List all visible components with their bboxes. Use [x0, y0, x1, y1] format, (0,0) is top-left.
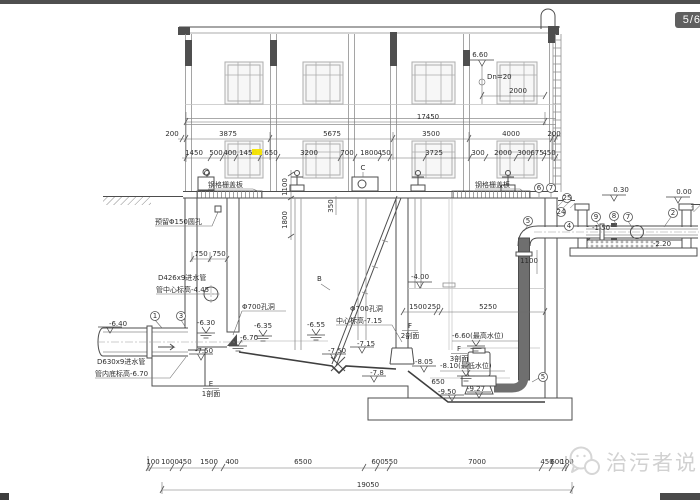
- ref-7b: 7: [547, 184, 556, 193]
- steel-grating-2: [452, 191, 530, 198]
- pump-station-section-drawing: 17450 200 3875 5675 3500 4000 200 1450 5…: [0, 0, 700, 500]
- elev-m78: -7.8: [370, 369, 384, 377]
- svg-text:7: 7: [549, 184, 553, 192]
- label-screen-b: B: [317, 275, 322, 283]
- svg-text:F: F: [408, 322, 412, 330]
- ref-2: 2: [669, 209, 678, 218]
- svg-text:7: 7: [626, 213, 630, 221]
- cad-document-viewer: 5/6: [0, 0, 700, 500]
- dim-b4: 400: [225, 458, 238, 466]
- chat-bubble-icon: [566, 444, 602, 480]
- svg-text:4: 4: [567, 222, 572, 230]
- svg-text:2: 2: [671, 209, 675, 217]
- ref-8: 8: [610, 212, 619, 221]
- dim-r3-14: 450: [542, 149, 555, 157]
- earth-hatch-left: [103, 197, 151, 205]
- dim-b5: 6500: [294, 458, 312, 466]
- dim-r3-6: 700: [340, 149, 353, 157]
- ref-3: 3: [177, 312, 186, 321]
- label-d630-line1: D630x9进水管: [97, 357, 145, 366]
- dim-5250: 5250: [479, 303, 497, 311]
- dim-b1: 1000: [161, 458, 179, 466]
- svg-text:5: 5: [526, 217, 530, 225]
- pipe-dn-label: Dn=20: [487, 73, 512, 81]
- ref-5b: 5: [539, 373, 548, 382]
- label-reserved-hole: 预留Φ150圆孔: [155, 217, 202, 226]
- label-d630-line2: 管内底标高-6.70: [95, 369, 148, 378]
- dimensions-bottom: 100 1000 450 1500 400 6500 600 550 7000 …: [146, 456, 574, 494]
- dim-r3-0: 1450: [185, 149, 203, 157]
- dim-r2-3: 3500: [422, 130, 440, 138]
- ref-7: 7: [624, 213, 633, 222]
- dim-b0: 100: [146, 458, 159, 466]
- dim-350-v: 350: [327, 199, 335, 212]
- dim-b8: 7000: [468, 458, 486, 466]
- dim-r3-10: 300: [471, 149, 484, 157]
- exterior-ladder: [553, 34, 561, 192]
- gravel-fill: [588, 240, 658, 248]
- dim-r2-1: 3875: [219, 130, 237, 138]
- elev-m220: -2.20: [653, 240, 671, 248]
- svg-text:24: 24: [557, 208, 566, 216]
- svg-text:9: 9: [594, 213, 598, 221]
- label-hole700-right: Φ700孔洞: [350, 304, 383, 313]
- label-d426-line1: D426x9进水管: [158, 273, 206, 282]
- reserved-hole: [215, 206, 221, 212]
- dim-r3-12: 300: [517, 149, 530, 157]
- svg-text:E: E: [209, 380, 213, 388]
- elev-m640: -6.40: [109, 320, 127, 328]
- elev-m715: -7.15: [357, 340, 375, 348]
- svg-text:3剖面: 3剖面: [450, 354, 468, 363]
- elev-m655: -6.55: [307, 321, 325, 329]
- svg-text:8: 8: [612, 212, 616, 220]
- scrollbar-thumb[interactable]: [660, 493, 700, 500]
- dim-r3-5: 3200: [300, 149, 318, 157]
- dim-r3-7: 1800: [360, 149, 378, 157]
- inlet-channel-wall: [227, 198, 239, 332]
- dim-1800-v: 1800: [281, 211, 289, 229]
- dim-1500: 1500: [409, 303, 427, 311]
- ref-1: 1: [151, 312, 160, 321]
- elev-m750-mid: -7.50: [328, 347, 346, 355]
- dim-b6: 600: [371, 458, 384, 466]
- dim-total-bottom: 19050: [357, 481, 379, 489]
- scrollbar-corner: [0, 493, 9, 500]
- elev-000: 0.00: [676, 188, 692, 196]
- ref-4: 4: [565, 222, 574, 231]
- divider-wall: [396, 198, 408, 348]
- label-grating-2: 钢格栅盖板: [475, 180, 510, 189]
- dim-r3-4: 650: [264, 149, 277, 157]
- dim-b2: 450: [178, 458, 191, 466]
- dim-750a: 750: [194, 250, 207, 258]
- svg-text:5: 5: [541, 373, 545, 381]
- elev-m927: -9.27: [467, 385, 485, 393]
- roof-eave-left: [178, 27, 190, 35]
- elev-m805: -8.05: [415, 358, 433, 366]
- elev-m750-left: -7.50: [195, 347, 213, 355]
- label-center-elev: 中心标高-7.15: [336, 316, 382, 325]
- dim-r2-4: 4000: [502, 130, 520, 138]
- steel-grating-1: [197, 191, 262, 198]
- dim-250: 250: [427, 303, 440, 311]
- watermark-text: 治污者说: [606, 447, 698, 477]
- dim-r2-2: 5675: [323, 130, 341, 138]
- svg-text:3: 3: [179, 312, 183, 320]
- dim-total-width: 17450: [417, 113, 439, 121]
- elev-m400: -4.00: [411, 273, 429, 281]
- dim-1100-v: 1100: [281, 178, 289, 196]
- elev-m635: -6.35: [254, 322, 272, 330]
- dim-r3-11: 2000: [494, 149, 512, 157]
- dim-r2-5: 200: [547, 130, 560, 138]
- svg-text:25: 25: [563, 194, 572, 202]
- screen-drive-unit: [352, 177, 378, 191]
- ref-25: 25: [563, 194, 572, 203]
- ref-24: 24: [557, 208, 566, 217]
- yellow-highlight: [252, 149, 262, 155]
- elev-roof: 6.60: [472, 51, 488, 59]
- dim-r2-0: 200: [165, 130, 178, 138]
- dim-r3-2: 400: [223, 149, 236, 157]
- elev-030: 0.30: [613, 186, 629, 194]
- elev-max-water: -6.60(最高水位): [452, 331, 504, 340]
- dim-2000: 2000: [509, 87, 527, 95]
- ref-5a: 5: [524, 217, 533, 226]
- dim-b3: 1500: [200, 458, 218, 466]
- ref-9: 9: [592, 213, 601, 222]
- label-hole700-left: Φ700孔洞: [242, 302, 275, 311]
- dim-r3-8: 450: [377, 149, 390, 157]
- ref-6: 6: [535, 184, 544, 193]
- watermark: 治污者说: [566, 444, 698, 480]
- elev-m950: -9.50: [438, 388, 456, 396]
- dim-1100b: 1100: [520, 257, 538, 265]
- svg-text:1剖面: 1剖面: [202, 389, 220, 398]
- dim-r3-1: 500: [209, 149, 222, 157]
- elev-m670: -6.70: [240, 334, 258, 342]
- label-grating-1: 钢格栅盖板: [208, 180, 243, 189]
- svg-text:2剖面: 2剖面: [401, 331, 419, 340]
- dim-650: 650: [431, 378, 444, 386]
- label-d426-line2: 管中心标高-4.45: [156, 285, 209, 294]
- elev-m630: -6.30: [197, 319, 215, 327]
- label-c: C: [361, 164, 366, 172]
- dim-750b: 750: [212, 250, 225, 258]
- svg-text:F: F: [457, 345, 461, 353]
- svg-text:1: 1: [153, 312, 157, 320]
- dim-r3-9: 3725: [425, 149, 443, 157]
- svg-text:6: 6: [537, 184, 542, 192]
- dim-b7: 550: [384, 458, 397, 466]
